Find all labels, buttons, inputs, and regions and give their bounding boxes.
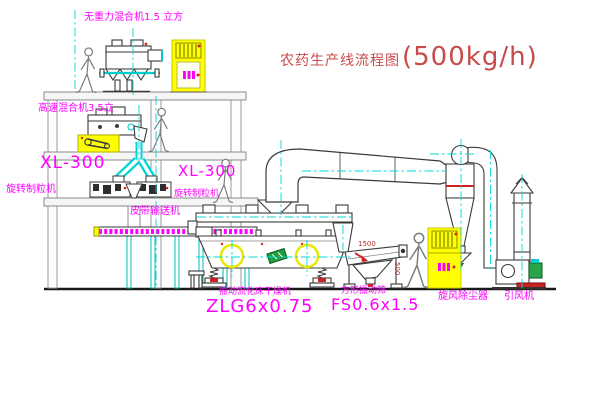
- label-granulator-mid-name: 旋转制粒机: [174, 190, 219, 199]
- gravity-mixer-machine: [99, 40, 162, 92]
- label-granulator-left-name: 旋转制粒机: [6, 185, 56, 195]
- label-high-speed-mixer: 高速混合机3.5立: [38, 104, 114, 114]
- fluid-bed-dryer-machine: [188, 200, 352, 288]
- label-cyclone: 旋风除尘器: [438, 292, 488, 302]
- label-gravity-mixer: 无重力混合机1.5 立方: [84, 13, 183, 23]
- induced-draft-fan-machine: [492, 259, 546, 290]
- worker-ground: [403, 233, 428, 288]
- label-belt-conveyor: 皮带输送机: [130, 207, 180, 217]
- page-title-capacity: (500kg/h): [402, 42, 538, 72]
- vibrating-screen-machine: [333, 223, 407, 288]
- dim-screen-width: 500: [393, 262, 400, 275]
- worker-top-floor: [76, 48, 97, 93]
- control-cabinet-top: [170, 40, 207, 92]
- label-screen-model: FS0.6x1.5: [331, 297, 419, 313]
- flow-diagram: 农药生产线流程图 (500kg/h) 无重力混合机1.5 立方 高速混合机3.5…: [0, 0, 600, 403]
- control-cabinet-ground: [428, 228, 461, 288]
- dim-screen-length: 1500: [358, 241, 376, 248]
- page-title-text: 农药生产线流程图: [280, 50, 400, 70]
- label-granulator-left-model: XL-300: [40, 155, 105, 172]
- granulator-left-machine: [90, 176, 130, 197]
- label-fan: 引风机: [504, 292, 534, 302]
- air-duct: [266, 149, 452, 202]
- granulator-right-machine: [137, 176, 171, 197]
- page-title: 农药生产线流程图 (500kg/h): [280, 42, 538, 72]
- label-granulator-mid-model: XL-300: [178, 164, 236, 179]
- label-dryer-model: ZLG6x0.75: [206, 298, 314, 316]
